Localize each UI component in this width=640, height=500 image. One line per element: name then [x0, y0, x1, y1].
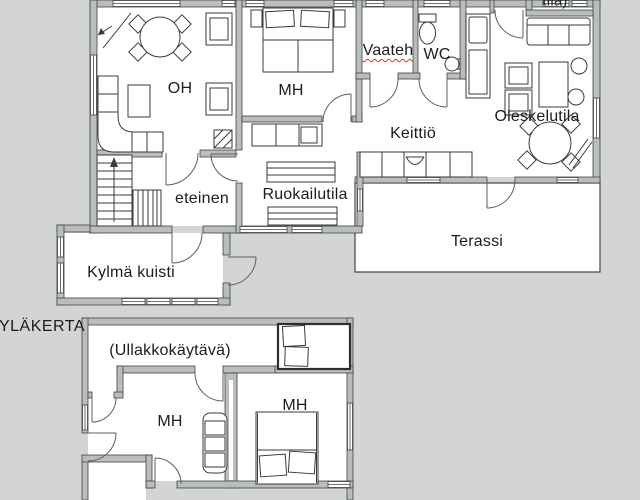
window	[407, 178, 440, 183]
nightstand	[251, 10, 262, 27]
window	[83, 405, 88, 430]
window	[366, 1, 384, 7]
bedroom-furniture	[251, 8, 345, 72]
room-label-terrace: Terassi	[451, 234, 503, 250]
window	[222, 1, 235, 7]
window	[328, 482, 350, 488]
armchair	[206, 83, 232, 115]
double-bed	[256, 412, 318, 484]
room-label-dining: Ruokailutila	[262, 187, 347, 203]
window	[358, 189, 363, 211]
room-label-hallway: eteinen	[175, 191, 229, 207]
window	[572, 1, 587, 7]
window	[334, 1, 353, 7]
floor-plan-page: OH MH Vaateh WC Keittiö Oleskelutila Ruo…	[0, 0, 640, 500]
section-label-upper-floor: YLÄKERTA	[0, 319, 85, 335]
window	[348, 403, 353, 450]
dining-table-round	[140, 17, 180, 57]
window	[246, 1, 264, 7]
dining-table	[267, 162, 335, 182]
toilet	[419, 14, 436, 44]
window	[58, 237, 64, 257]
terrace-outline	[355, 183, 600, 272]
pillow	[259, 454, 286, 477]
window	[122, 299, 145, 305]
room-label-cold-porch: Kylmä kuisti	[87, 265, 175, 281]
room-label-bedroom: MH	[278, 83, 303, 99]
window	[58, 263, 64, 293]
sofa	[203, 413, 227, 473]
window	[172, 299, 195, 305]
window	[424, 1, 450, 7]
window	[240, 227, 287, 233]
room-label-attic-corridor: (Ullakkokäytävä)	[109, 343, 230, 359]
pouf	[568, 89, 584, 105]
floor-plan-drawing	[0, 0, 640, 500]
double-bed	[263, 8, 333, 72]
window	[113, 1, 180, 7]
armchair	[505, 63, 532, 88]
door-arc	[228, 257, 256, 285]
storage-room	[278, 324, 350, 369]
upper-bedroom-furniture	[203, 412, 318, 484]
storage-boxes	[282, 325, 308, 366]
room-label-bedroom-upper-left: MH	[157, 414, 182, 430]
nightstand	[334, 10, 345, 27]
coffee-table	[128, 85, 150, 117]
window	[197, 299, 218, 305]
window	[292, 227, 322, 233]
room-label-wc: WC	[423, 47, 450, 63]
window	[594, 98, 600, 138]
fireplace	[214, 130, 232, 148]
pouf	[571, 58, 587, 74]
stairwell-area	[88, 462, 146, 500]
armchair	[206, 13, 232, 45]
window	[147, 299, 170, 305]
coffee-table	[539, 62, 568, 107]
room-label-kitchen: Keittiö	[390, 126, 436, 142]
bench	[268, 207, 337, 225]
ground-floor-plan	[57, 0, 600, 305]
room-label-lounge: Oleskelutila	[494, 109, 579, 125]
room-label-living-room: OH	[168, 81, 192, 97]
pillow	[288, 451, 315, 474]
dining-table-round	[529, 122, 571, 164]
window	[557, 178, 578, 183]
fridge-cabinet	[466, 14, 490, 98]
window	[91, 55, 97, 115]
room-label-cropped: tila)	[542, 0, 567, 9]
room-label-bedroom-upper-right: MH	[282, 398, 307, 414]
sofa	[527, 18, 590, 45]
kitchen-counter	[360, 152, 472, 177]
cabinet-row	[252, 124, 322, 146]
room-label-closet: Vaateh	[363, 43, 414, 59]
